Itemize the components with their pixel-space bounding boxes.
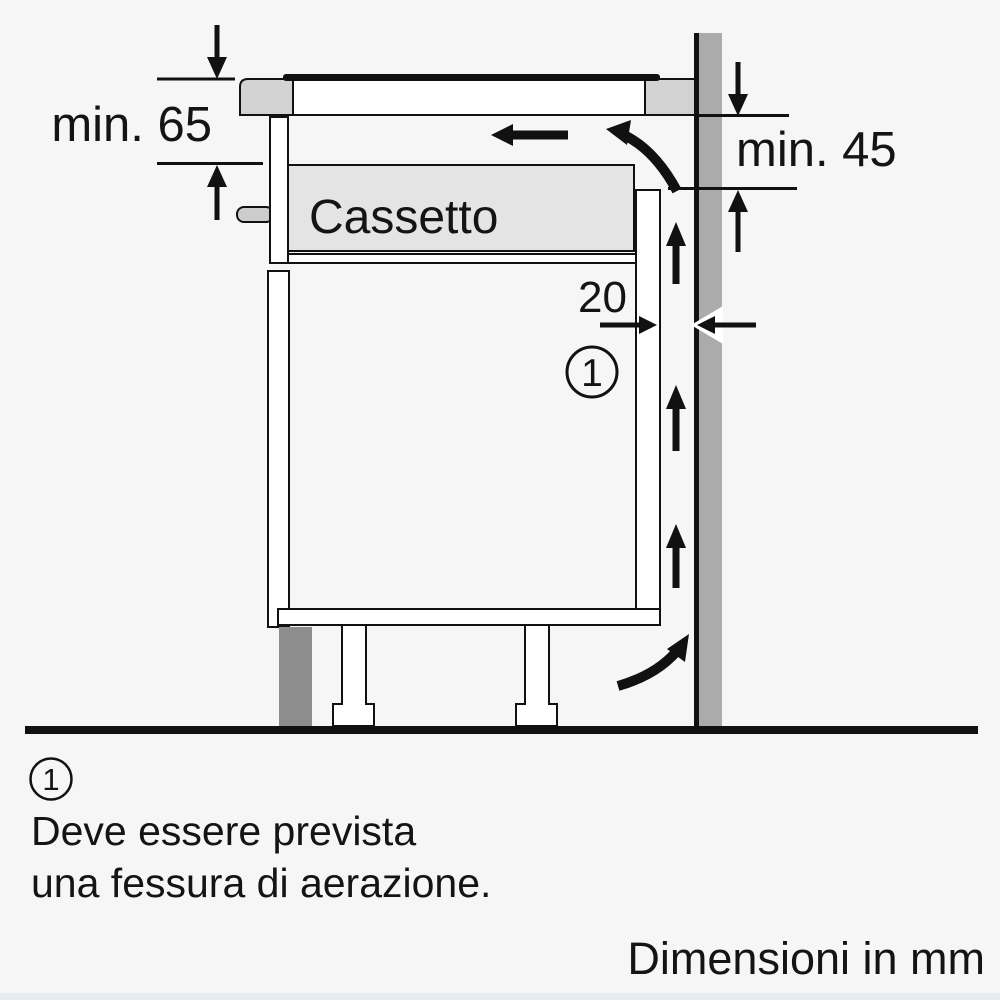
airflow-gap-arrow-2-icon bbox=[666, 385, 686, 451]
floor-line bbox=[25, 726, 978, 734]
callout-digit: 1 bbox=[581, 352, 603, 395]
drawer-handle bbox=[237, 207, 273, 222]
cabinet-leg-rear bbox=[516, 625, 557, 726]
worktop-front-section bbox=[240, 79, 293, 115]
plinth bbox=[279, 627, 312, 726]
footer-strip bbox=[0, 993, 1000, 1000]
worktop-rear-section bbox=[645, 79, 695, 115]
installation-diagram-page: 1 min. 65 min. 45 20 Cassetto 1 Deve ess… bbox=[0, 0, 1000, 1000]
drawer-front-panel bbox=[270, 117, 288, 263]
arrow-down-icon bbox=[728, 94, 748, 116]
arrow-up-icon bbox=[207, 165, 227, 187]
footnote-line-1: Deve essere prevista bbox=[31, 808, 416, 854]
label-drawer: Cassetto bbox=[309, 191, 498, 244]
cabinet-door bbox=[268, 271, 289, 627]
cabinet-leg-front bbox=[333, 625, 374, 726]
footnote: 1 Deve essere prevista una fessura di ae… bbox=[31, 759, 492, 907]
installation-diagram: 1 min. 65 min. 45 20 Cassetto 1 Deve ess… bbox=[0, 0, 1000, 1000]
hob-chassis bbox=[293, 78, 645, 115]
airflow-left-arrow-icon bbox=[491, 124, 568, 146]
drawer-divider-shelf bbox=[288, 254, 637, 263]
callout-1: 1 bbox=[567, 347, 617, 397]
cabinet-back-panel bbox=[636, 190, 660, 609]
footnote-digit: 1 bbox=[42, 762, 59, 797]
units-note: Dimensioni in mm bbox=[627, 933, 985, 984]
wall-edge-line bbox=[694, 33, 699, 726]
label-gap-20: 20 bbox=[578, 273, 627, 322]
cabinet-bottom-shelf bbox=[278, 609, 660, 625]
wall bbox=[699, 33, 722, 726]
arrow-down-icon bbox=[207, 57, 227, 79]
arrow-up-icon bbox=[728, 190, 748, 212]
label-min-45: min. 45 bbox=[736, 123, 897, 177]
label-min-65: min. 65 bbox=[51, 98, 212, 152]
airflow-gap-arrow-1-icon bbox=[666, 222, 686, 284]
airflow-gap-arrow-3-icon bbox=[666, 524, 686, 588]
hob-glass-top bbox=[283, 74, 660, 81]
footnote-line-2: una fessura di aerazione. bbox=[31, 860, 491, 906]
airflow-top-curve-head-icon bbox=[606, 120, 631, 145]
